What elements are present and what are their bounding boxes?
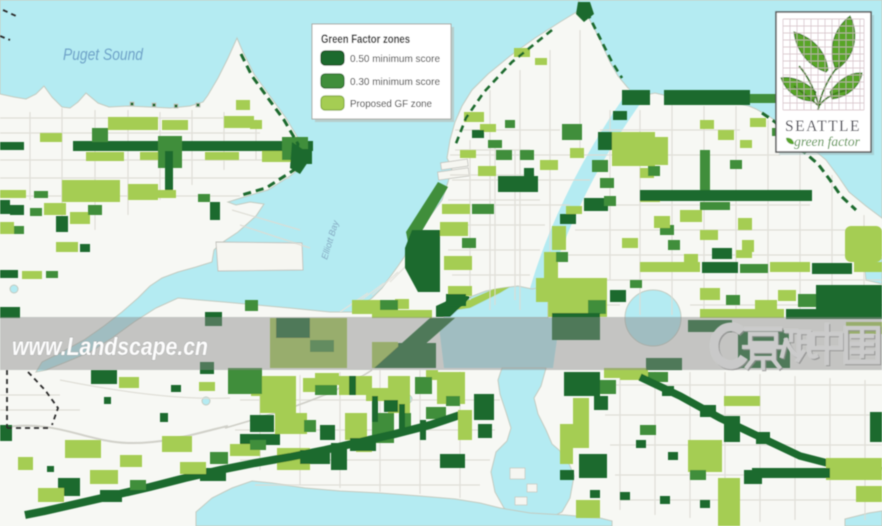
svg-text:SEATTLE: SEATTLE: [785, 118, 861, 135]
svg-text:www.Landscape.cn: www.Landscape.cn: [12, 333, 208, 361]
svg-text:green factor: green factor: [794, 134, 861, 149]
svg-text:0.30 minimum score: 0.30 minimum score: [350, 76, 440, 88]
svg-text:Green Factor zones: Green Factor zones: [321, 34, 410, 46]
svg-text:0.50 minimum score: 0.50 minimum score: [350, 53, 440, 65]
svg-text:Proposed GF zone: Proposed GF zone: [350, 98, 432, 110]
svg-text:Puget Sound: Puget Sound: [63, 45, 143, 64]
